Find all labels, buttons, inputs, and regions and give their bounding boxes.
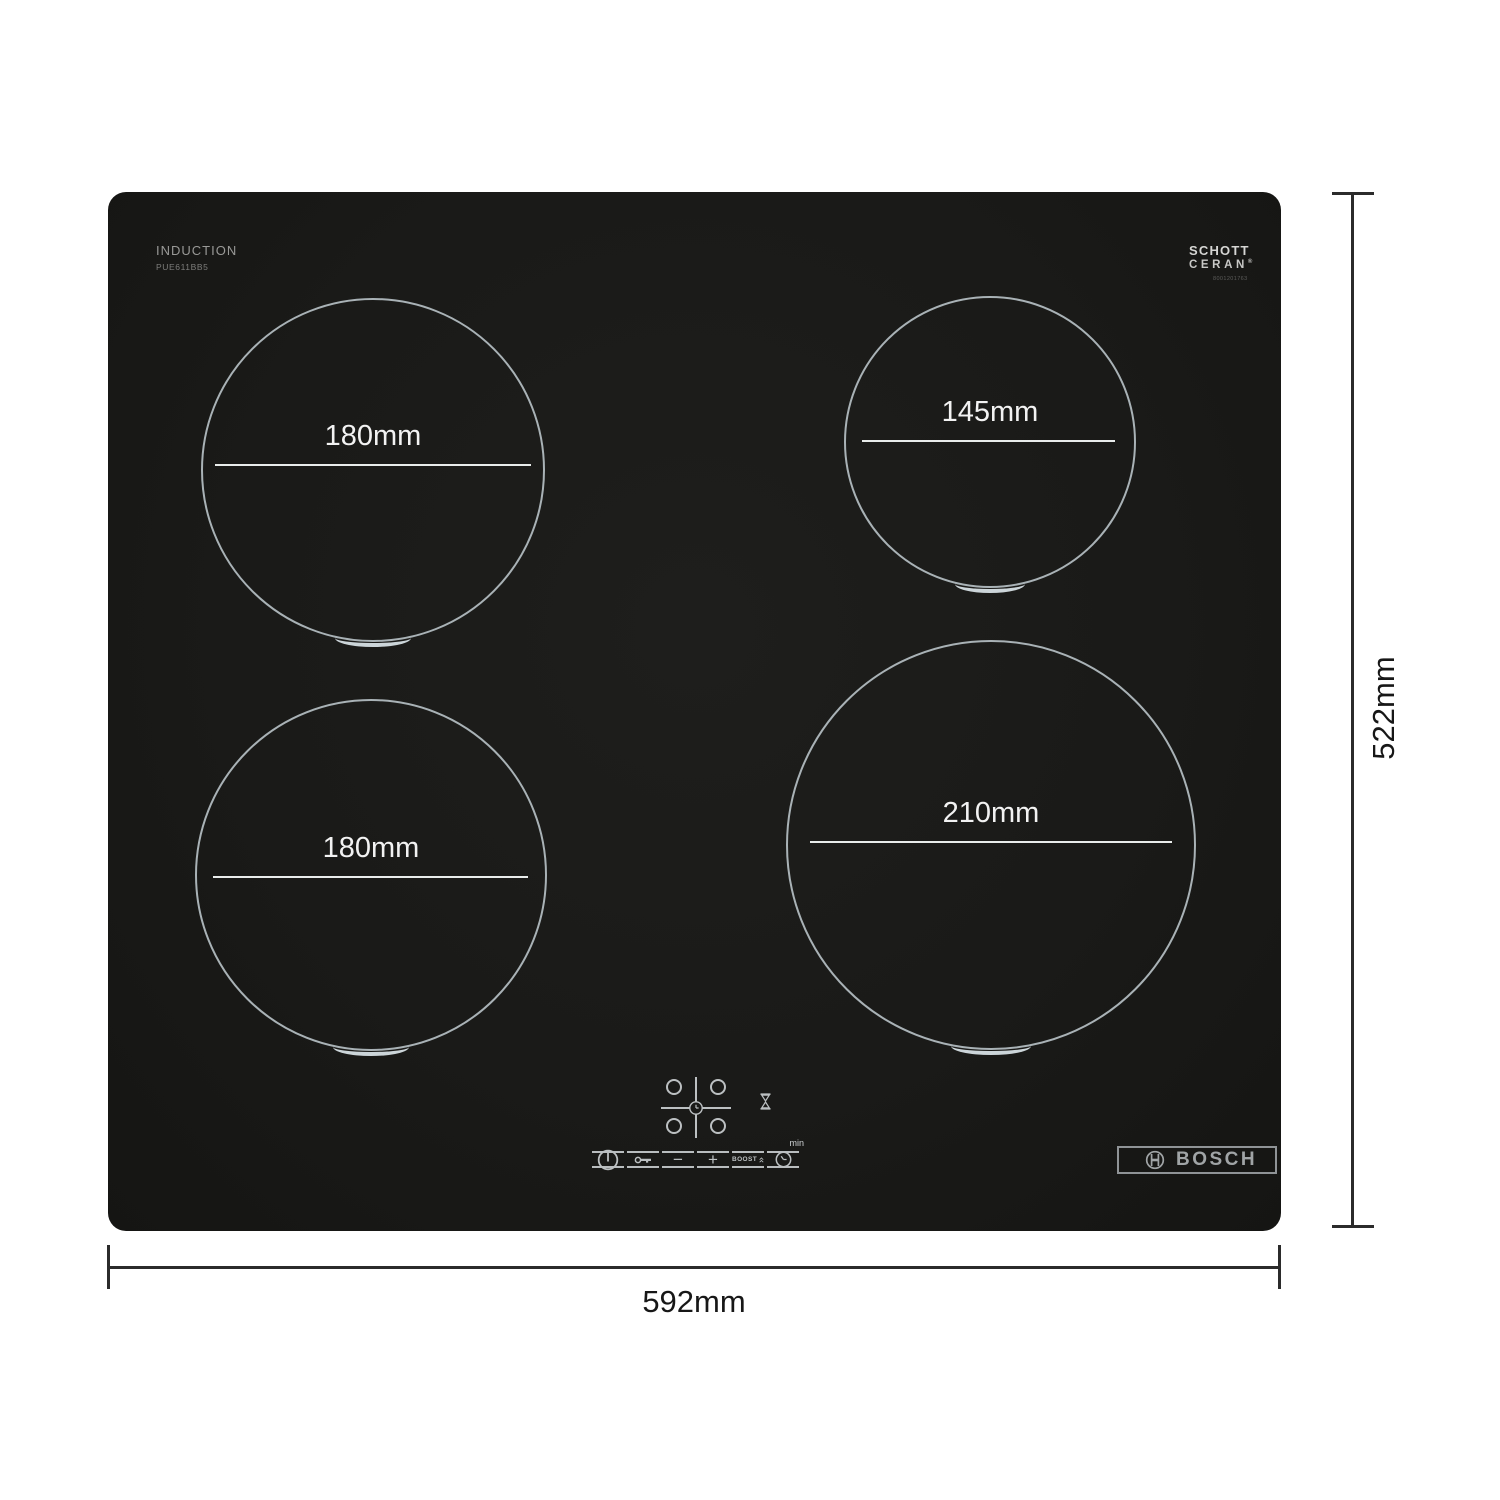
zone-ring: [786, 640, 1196, 1050]
schott-ceran-logo: SCHOTT CERAN® 8001201763: [1189, 243, 1252, 282]
zone-selector-front-right: [710, 1118, 726, 1134]
zone-ring: [201, 298, 545, 642]
timer-clock-icon: [775, 1151, 792, 1168]
zone-ring: [195, 699, 547, 1051]
boost-label: BOOST: [732, 1156, 757, 1163]
zone-front-marker: [951, 1037, 1031, 1055]
boost-chevrons-icon: [759, 1155, 764, 1165]
zone-diameter-line: [215, 464, 531, 466]
model-number: PUE611BB5: [156, 262, 237, 272]
zone-ring: [844, 296, 1136, 588]
registered-mark: ®: [1248, 259, 1252, 265]
timer-button: [767, 1151, 799, 1168]
zone-diameter-line: [213, 876, 528, 878]
hourglass-icon: [759, 1093, 772, 1110]
zone-diameter-label: 210mm: [786, 797, 1196, 830]
zone-selector-rear-right: [710, 1079, 726, 1095]
cooking-zone-front-right: 210mm: [786, 640, 1196, 1050]
zone-diameter-label: 180mm: [201, 420, 545, 453]
bosch-emblem-icon: [1145, 1150, 1165, 1170]
zone-selector-front-left: [666, 1118, 682, 1134]
zone-front-marker: [335, 629, 411, 647]
min-unit-label: min: [778, 1138, 804, 1148]
cooking-zone-front-left: 180mm: [195, 699, 547, 1051]
zone-front-marker: [955, 575, 1025, 593]
schott-logo-line1: SCHOTT: [1189, 243, 1252, 258]
width-dimension-line: [108, 1266, 1280, 1269]
width-dimension-tick-left: [107, 1245, 110, 1289]
bosch-wordmark: BOSCH: [1176, 1149, 1257, 1171]
cooking-zone-rear-right: 145mm: [844, 296, 1136, 588]
minus-button: −: [662, 1151, 694, 1168]
height-dimension-tick-bottom: [1332, 1225, 1374, 1228]
zone-selector-rear-left: [666, 1079, 682, 1095]
zone-selector-clock-icon: [689, 1101, 703, 1115]
bosch-badge: BOSCH: [1117, 1146, 1277, 1174]
key-lock-icon: [634, 1155, 653, 1165]
cooking-zone-rear-left: 180mm: [201, 298, 545, 642]
plus-button: +: [697, 1151, 729, 1168]
zone-diameter-line: [862, 440, 1115, 442]
width-dimension-label: 592mm: [594, 1284, 794, 1320]
touch-control-row: − + BOOST: [592, 1151, 799, 1168]
key-lock-button: [627, 1151, 659, 1168]
induction-print-block: INDUCTION PUE611BB5: [156, 243, 237, 272]
zone-front-marker: [333, 1038, 409, 1056]
height-dimension-line: [1351, 193, 1354, 1227]
power-button: [592, 1151, 624, 1168]
induction-label: INDUCTION: [156, 243, 237, 258]
height-dimension-tick-top: [1332, 192, 1374, 195]
schott-logo-line2: CERAN®: [1189, 259, 1252, 271]
zone-diameter-line: [810, 841, 1172, 843]
boost-button: BOOST: [732, 1151, 764, 1168]
product-image: INDUCTION PUE611BB5 SCHOTT CERAN® 800120…: [0, 0, 1500, 1500]
power-icon: [596, 1148, 620, 1172]
zone-diameter-label: 145mm: [844, 396, 1136, 429]
zone-diameter-label: 180mm: [195, 832, 547, 865]
width-dimension-tick-right: [1278, 1245, 1281, 1289]
height-dimension-label: 522mm: [1364, 608, 1404, 808]
glass-code: 8001201763: [1213, 276, 1252, 282]
